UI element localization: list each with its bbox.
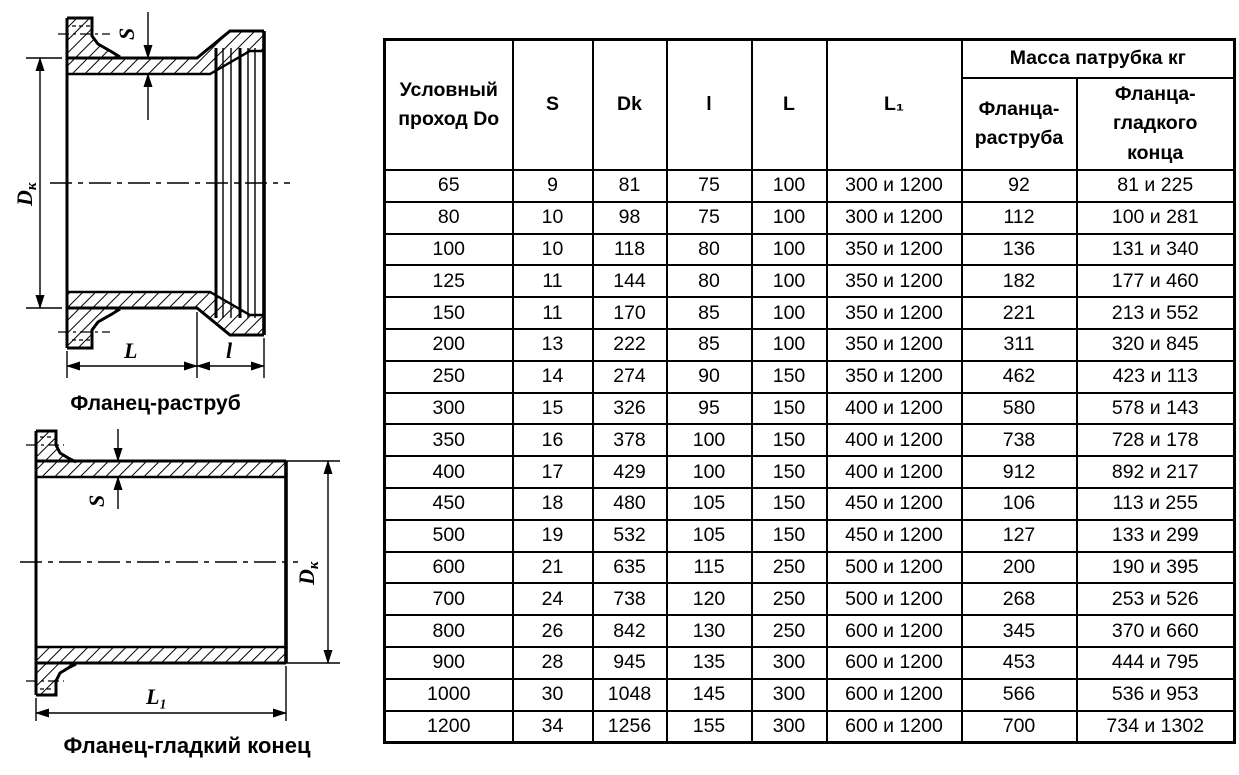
table-cell: 190 и 395: [1077, 552, 1235, 584]
table-cell: 1256: [593, 711, 667, 743]
table-cell: 100: [752, 297, 827, 329]
table-cell: 17: [513, 456, 593, 488]
table-cell: 150: [752, 361, 827, 393]
dk-label: Dк: [12, 182, 40, 207]
table-cell: 26: [513, 615, 593, 647]
table-cell: 100: [667, 424, 752, 456]
table-cell: 738: [962, 424, 1077, 456]
table-cell: 350: [385, 424, 513, 456]
table-cell: 213 и 552: [1077, 297, 1235, 329]
table-cell: 100: [752, 234, 827, 266]
table-cell: 345: [962, 615, 1077, 647]
table-row: 1200341256155300600 и 1200700734 и 1302: [385, 711, 1235, 743]
table-row: 80109875100300 и 1200112100 и 281: [385, 202, 1235, 234]
table-cell: 250: [752, 583, 827, 615]
header-l-small: l: [667, 40, 752, 171]
table-cell: 500 и 1200: [827, 552, 962, 584]
table-cell: 734 и 1302: [1077, 711, 1235, 743]
table-cell: 350 и 1200: [827, 234, 962, 266]
table-row: 45018480105150450 и 1200106113 и 255: [385, 488, 1235, 520]
table-cell: 250: [385, 361, 513, 393]
table-cell: 326: [593, 393, 667, 425]
table-cell: 700: [385, 583, 513, 615]
table-cell: 578 и 143: [1077, 393, 1235, 425]
table-cell: 14: [513, 361, 593, 393]
table-cell: 150: [752, 488, 827, 520]
table-cell: 105: [667, 488, 752, 520]
table-cell: 100: [667, 456, 752, 488]
table-cell: 85: [667, 329, 752, 361]
table-cell: 900: [385, 647, 513, 679]
page: Dк S L l Фланец-раструб: [0, 0, 1239, 775]
header-s: S: [513, 40, 593, 171]
table-cell: 462: [962, 361, 1077, 393]
header-mass-group: Масса патрубка кг: [962, 40, 1235, 79]
table-cell: 912: [962, 456, 1077, 488]
table-cell: 155: [667, 711, 752, 743]
header-do: Условный проход Do: [385, 40, 513, 171]
table-cell: 125: [385, 265, 513, 297]
table-cell: 80: [667, 265, 752, 297]
table-cell: 100: [385, 234, 513, 266]
table-row: 35016378100150400 и 1200738728 и 178: [385, 424, 1235, 456]
table-cell: 350 и 1200: [827, 329, 962, 361]
flange-socket-drawing: Dк S L l: [12, 6, 367, 391]
table-cell: 150: [752, 456, 827, 488]
table-cell: 16: [513, 424, 593, 456]
table-cell: 100: [752, 170, 827, 202]
table-cell: 113 и 255: [1077, 488, 1235, 520]
header-l1: L₁: [827, 40, 962, 171]
table-cell: 10: [513, 202, 593, 234]
table-cell: 350 и 1200: [827, 297, 962, 329]
table-row: 50019532105150450 и 1200127133 и 299: [385, 520, 1235, 552]
table-cell: 106: [962, 488, 1077, 520]
table-cell: 30: [513, 679, 593, 711]
bottom-wall-hatch: [36, 647, 286, 663]
table-cell: 370 и 660: [1077, 615, 1235, 647]
table-row: 90028945135300600 и 1200453444 и 795: [385, 647, 1235, 679]
table-cell: 600 и 1200: [827, 679, 962, 711]
table-cell: 98: [593, 202, 667, 234]
table-cell: 75: [667, 202, 752, 234]
spec-table: Условный проход Do S Dk l L L₁ Масса пат…: [383, 38, 1236, 744]
table-cell: 112: [962, 202, 1077, 234]
header-mass-plain: Фланца- гладкого конца: [1077, 78, 1235, 170]
table-cell: 80: [667, 234, 752, 266]
table-cell: 728 и 178: [1077, 424, 1235, 456]
table-cell: 300 и 1200: [827, 202, 962, 234]
table-cell: 300: [752, 647, 827, 679]
table-cell: 182: [962, 265, 1077, 297]
table-cell: 15: [513, 393, 593, 425]
table-body: 6598175100300 и 12009281 и 2258010987510…: [385, 170, 1235, 743]
table-cell: 300: [385, 393, 513, 425]
header-mass-socket: Фланца- раструба: [962, 78, 1077, 170]
table-cell: 566: [962, 679, 1077, 711]
table-cell: 21: [513, 552, 593, 584]
table-cell: 423 и 113: [1077, 361, 1235, 393]
table-cell: 90: [667, 361, 752, 393]
table-cell: 250: [752, 615, 827, 647]
pipe-section: [50, 18, 290, 348]
table-cell: 144: [593, 265, 667, 297]
table-cell: 221: [962, 297, 1077, 329]
table-cell: 500 и 1200: [827, 583, 962, 615]
table-cell: 274: [593, 361, 667, 393]
table-cell: 18: [513, 488, 593, 520]
table-cell: 115: [667, 552, 752, 584]
table-cell: 177 и 460: [1077, 265, 1235, 297]
s-label: S: [84, 495, 109, 507]
table-cell: 100: [752, 265, 827, 297]
table-cell: 127: [962, 520, 1077, 552]
table-cell: 120: [667, 583, 752, 615]
table-cell: 13: [513, 329, 593, 361]
top-wall-hatch: [67, 58, 197, 74]
l-small-label: l: [226, 338, 233, 363]
table-cell: 150: [752, 393, 827, 425]
table-cell: 400 и 1200: [827, 456, 962, 488]
table-cell: 1048: [593, 679, 667, 711]
table-cell: 1200: [385, 711, 513, 743]
table-cell: 150: [385, 297, 513, 329]
table-cell: 150: [752, 520, 827, 552]
table-cell: 95: [667, 393, 752, 425]
table-cell: 320 и 845: [1077, 329, 1235, 361]
header-l-big: L: [752, 40, 827, 171]
table-cell: 85: [667, 297, 752, 329]
table-cell: 453: [962, 647, 1077, 679]
table-cell: 350 и 1200: [827, 265, 962, 297]
table-cell: 80: [385, 202, 513, 234]
table-cell: 11: [513, 265, 593, 297]
table-row: 1251114480100350 и 1200182177 и 460: [385, 265, 1235, 297]
table-cell: 635: [593, 552, 667, 584]
table-cell: 268: [962, 583, 1077, 615]
table-row: 6598175100300 и 12009281 и 225: [385, 170, 1235, 202]
table-row: 70024738120250500 и 1200268253 и 526: [385, 583, 1235, 615]
table-cell: 450 и 1200: [827, 520, 962, 552]
header-dk: Dk: [593, 40, 667, 171]
table-cell: 34: [513, 711, 593, 743]
table-cell: 500: [385, 520, 513, 552]
table-row: 2001322285100350 и 1200311320 и 845: [385, 329, 1235, 361]
table-cell: 65: [385, 170, 513, 202]
table-cell: 1000: [385, 679, 513, 711]
top-wall-hatch: [36, 461, 286, 477]
table-cell: 738: [593, 583, 667, 615]
table-cell: 350 и 1200: [827, 361, 962, 393]
table-cell: 19: [513, 520, 593, 552]
table-cell: 892 и 217: [1077, 456, 1235, 488]
table-cell: 28: [513, 647, 593, 679]
l-big-label: L: [123, 338, 137, 363]
table-cell: 200: [962, 552, 1077, 584]
table-row: 40017429100150400 и 1200912892 и 217: [385, 456, 1235, 488]
table-cell: 400 и 1200: [827, 424, 962, 456]
table-cell: 24: [513, 583, 593, 615]
table-row: 1000301048145300600 и 1200566536 и 953: [385, 679, 1235, 711]
table-cell: 100: [752, 329, 827, 361]
table-cell: 133 и 299: [1077, 520, 1235, 552]
table-cell: 300 и 1200: [827, 170, 962, 202]
table-cell: 400: [385, 456, 513, 488]
flange-socket-caption: Фланец-раструб: [28, 392, 283, 416]
dk-label: Dк: [294, 561, 322, 586]
flange-plain-end-caption: Фланец-гладкий конец: [22, 733, 352, 759]
table-cell: 450 и 1200: [827, 488, 962, 520]
table-cell: 480: [593, 488, 667, 520]
pipe-section: [20, 431, 298, 695]
table-cell: 170: [593, 297, 667, 329]
table-row: 80026842130250600 и 1200345370 и 660: [385, 615, 1235, 647]
table-cell: 100: [752, 202, 827, 234]
table-cell: 150: [752, 424, 827, 456]
table-cell: 200: [385, 329, 513, 361]
table-cell: 311: [962, 329, 1077, 361]
spec-table-wrap: Условный проход Do S Dk l L L₁ Масса пат…: [383, 38, 1233, 744]
table-cell: 118: [593, 234, 667, 266]
table-cell: 253 и 526: [1077, 583, 1235, 615]
table-cell: 450: [385, 488, 513, 520]
table-cell: 842: [593, 615, 667, 647]
table-row: 60021635115250500 и 1200200190 и 395: [385, 552, 1235, 584]
table-cell: 250: [752, 552, 827, 584]
s-label: S: [114, 28, 139, 40]
table-cell: 300: [752, 711, 827, 743]
table-cell: 222: [593, 329, 667, 361]
table-cell: 100 и 281: [1077, 202, 1235, 234]
table-cell: 536 и 953: [1077, 679, 1235, 711]
table-row: 3001532695150400 и 1200580578 и 143: [385, 393, 1235, 425]
bottom-wall-hatch: [67, 292, 197, 308]
table-cell: 300: [752, 679, 827, 711]
table-cell: 135: [667, 647, 752, 679]
table-cell: 81: [593, 170, 667, 202]
l1-label: L₁: [145, 684, 167, 709]
table-cell: 131 и 340: [1077, 234, 1235, 266]
table-cell: 11: [513, 297, 593, 329]
table-cell: 105: [667, 520, 752, 552]
table-cell: 9: [513, 170, 593, 202]
table-row: 1001011880100350 и 1200136131 и 340: [385, 234, 1235, 266]
table-cell: 700: [962, 711, 1077, 743]
table-cell: 600: [385, 552, 513, 584]
table-cell: 800: [385, 615, 513, 647]
table-cell: 145: [667, 679, 752, 711]
table-cell: 75: [667, 170, 752, 202]
flange-plain-end-drawing: Dк S L₁: [6, 423, 356, 728]
table-cell: 444 и 795: [1077, 647, 1235, 679]
table-cell: 400 и 1200: [827, 393, 962, 425]
table-cell: 429: [593, 456, 667, 488]
table-cell: 92: [962, 170, 1077, 202]
table-cell: 600 и 1200: [827, 615, 962, 647]
table-cell: 81 и 225: [1077, 170, 1235, 202]
table-cell: 378: [593, 424, 667, 456]
table-row: 2501427490150350 и 1200462423 и 113: [385, 361, 1235, 393]
table-cell: 532: [593, 520, 667, 552]
table-header: Условный проход Do S Dk l L L₁ Масса пат…: [385, 40, 1235, 171]
table-cell: 600 и 1200: [827, 711, 962, 743]
table-cell: 945: [593, 647, 667, 679]
table-cell: 10: [513, 234, 593, 266]
table-cell: 130: [667, 615, 752, 647]
table-row: 1501117085100350 и 1200221213 и 552: [385, 297, 1235, 329]
table-cell: 600 и 1200: [827, 647, 962, 679]
table-cell: 136: [962, 234, 1077, 266]
table-cell: 580: [962, 393, 1077, 425]
